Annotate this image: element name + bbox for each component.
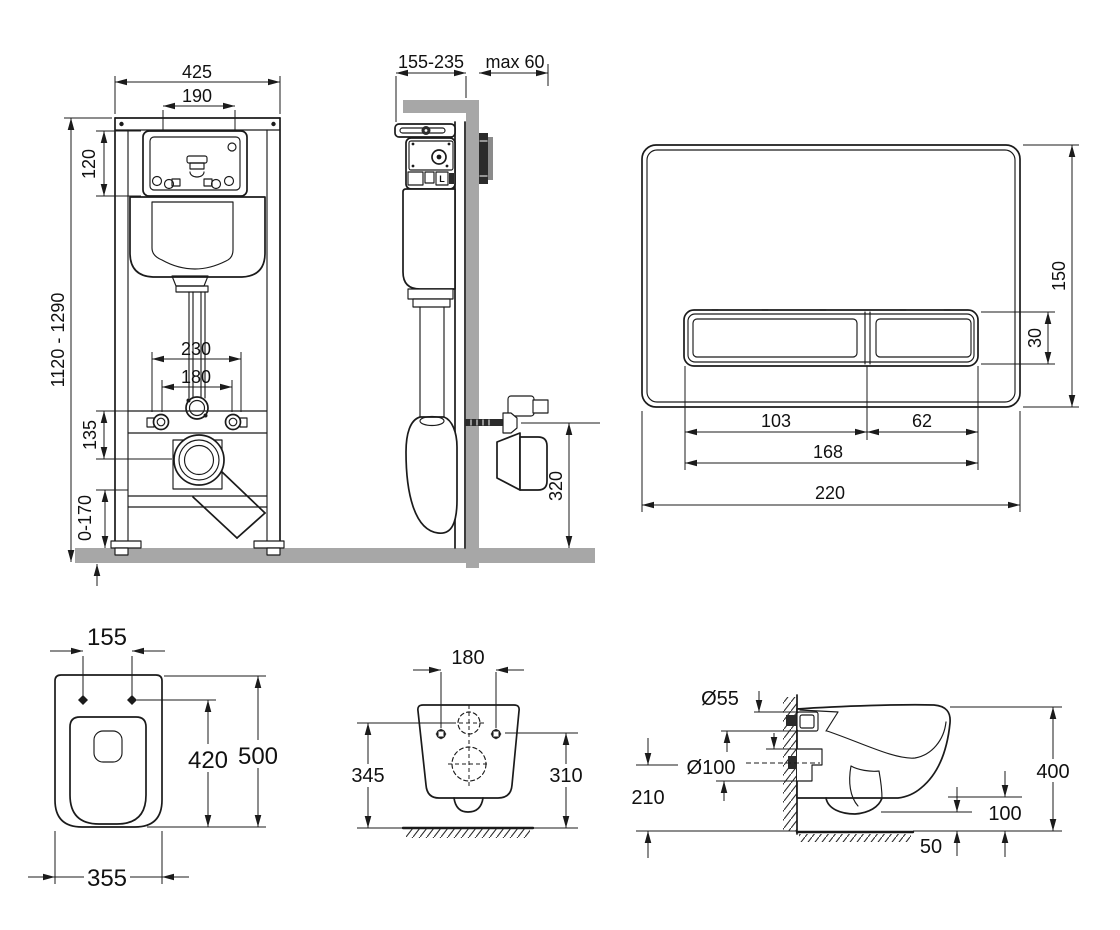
dim-height-range: 1120 - 1290: [48, 293, 68, 388]
dim-wall-max: max 60: [485, 52, 544, 72]
dim-outlet-axis-height: 210: [631, 787, 664, 809]
bowl-side-view: Ø55 Ø100 210 400 100 50: [631, 688, 1073, 858]
dim-panel-height: 120: [79, 149, 99, 179]
small-flush-button: [876, 319, 971, 357]
dim-plate-width: 220: [815, 483, 845, 503]
dim-base-adjust: 0-170: [75, 495, 95, 541]
dim-inlet-diameter: Ø55: [701, 688, 739, 710]
dim-fixing-span-outer: 230: [181, 339, 211, 359]
floor-hatch-side: [799, 834, 911, 842]
left-fixing-bolt: [154, 415, 169, 430]
bowl-top-view: 155 420 500 355: [28, 624, 278, 892]
bowl-top-dimensions: 155 420 500 355: [28, 624, 278, 892]
dim-underside-clearance: 100: [988, 803, 1021, 825]
right-fixing-bolt: [226, 415, 241, 430]
flush-bend: [406, 417, 457, 533]
bowl-rear-view: 180 345 310: [349, 647, 585, 838]
drain-elbow: [128, 435, 267, 538]
dim-window-width: 190: [182, 86, 212, 106]
dim-small-button: 62: [912, 411, 932, 431]
dim-rear-fixing: 180: [451, 647, 484, 669]
wall-hung-toilet-installation-drawing: 425 190 120 1120 - 1290 230 180: [0, 0, 1120, 930]
floor-hatch: [406, 829, 530, 838]
dim-depth-range: 155-235: [398, 52, 464, 72]
frame-side-view: L 155-235: [395, 52, 600, 568]
flush-plate-dimensions: 150 30 103 62 168 220: [642, 145, 1079, 512]
access-panel: [143, 131, 247, 196]
dim-seat-fixing: 155: [87, 624, 127, 651]
dim-bar-to-outlet: 135: [80, 420, 100, 450]
cistern-side: L: [403, 138, 457, 533]
dim-trap-clearance: 50: [920, 836, 942, 858]
dim-total-length: 500: [238, 743, 278, 770]
diagram-canvas: 425 190 120 1120 - 1290 230 180: [0, 0, 1120, 930]
bowl-rear-dimensions: 180 345 310: [349, 647, 585, 828]
flush-plate-outline: [642, 145, 1020, 407]
wall-bracket: [395, 124, 455, 137]
dim-frame-width: 425: [182, 62, 212, 82]
water-valve: [508, 396, 534, 416]
flush-plate-view: 150 30 103 62 168 220: [642, 145, 1079, 512]
dim-rim-height: 400: [1036, 761, 1069, 783]
dim-bowl-length: 420: [188, 747, 228, 774]
right-foot: [254, 541, 284, 548]
dim-outlet-height: 320: [546, 471, 566, 501]
top-profile: [403, 100, 479, 113]
floor-band: [75, 548, 595, 563]
dim-buttons-span: 168: [813, 442, 843, 462]
drain-connector: [497, 433, 520, 490]
frame-front-view: 425 190 120 1120 - 1290 230 180: [48, 62, 595, 586]
finished-wall: [466, 113, 479, 568]
inlet-pipe: [786, 715, 797, 726]
dim-fixing-span-inner: 180: [181, 367, 211, 387]
dim-plate-height: 150: [1049, 261, 1069, 291]
large-flush-button: [693, 319, 857, 357]
dim-large-button: 103: [761, 411, 791, 431]
left-fixing-hole: [436, 729, 447, 740]
bowl-inner: [94, 731, 122, 762]
dim-fixing-height: 310: [549, 765, 582, 787]
buttons-opening: [684, 310, 978, 366]
dim-button-height: 30: [1025, 328, 1045, 348]
dim-bowl-width: 355: [87, 865, 127, 892]
left-foot: [111, 541, 141, 548]
right-fixing-hole: [491, 729, 502, 740]
dim-inlet-axis-height: 345: [351, 765, 384, 787]
mechanism-mark: L: [439, 174, 445, 184]
dim-outlet-diameter: Ø100: [687, 757, 736, 779]
